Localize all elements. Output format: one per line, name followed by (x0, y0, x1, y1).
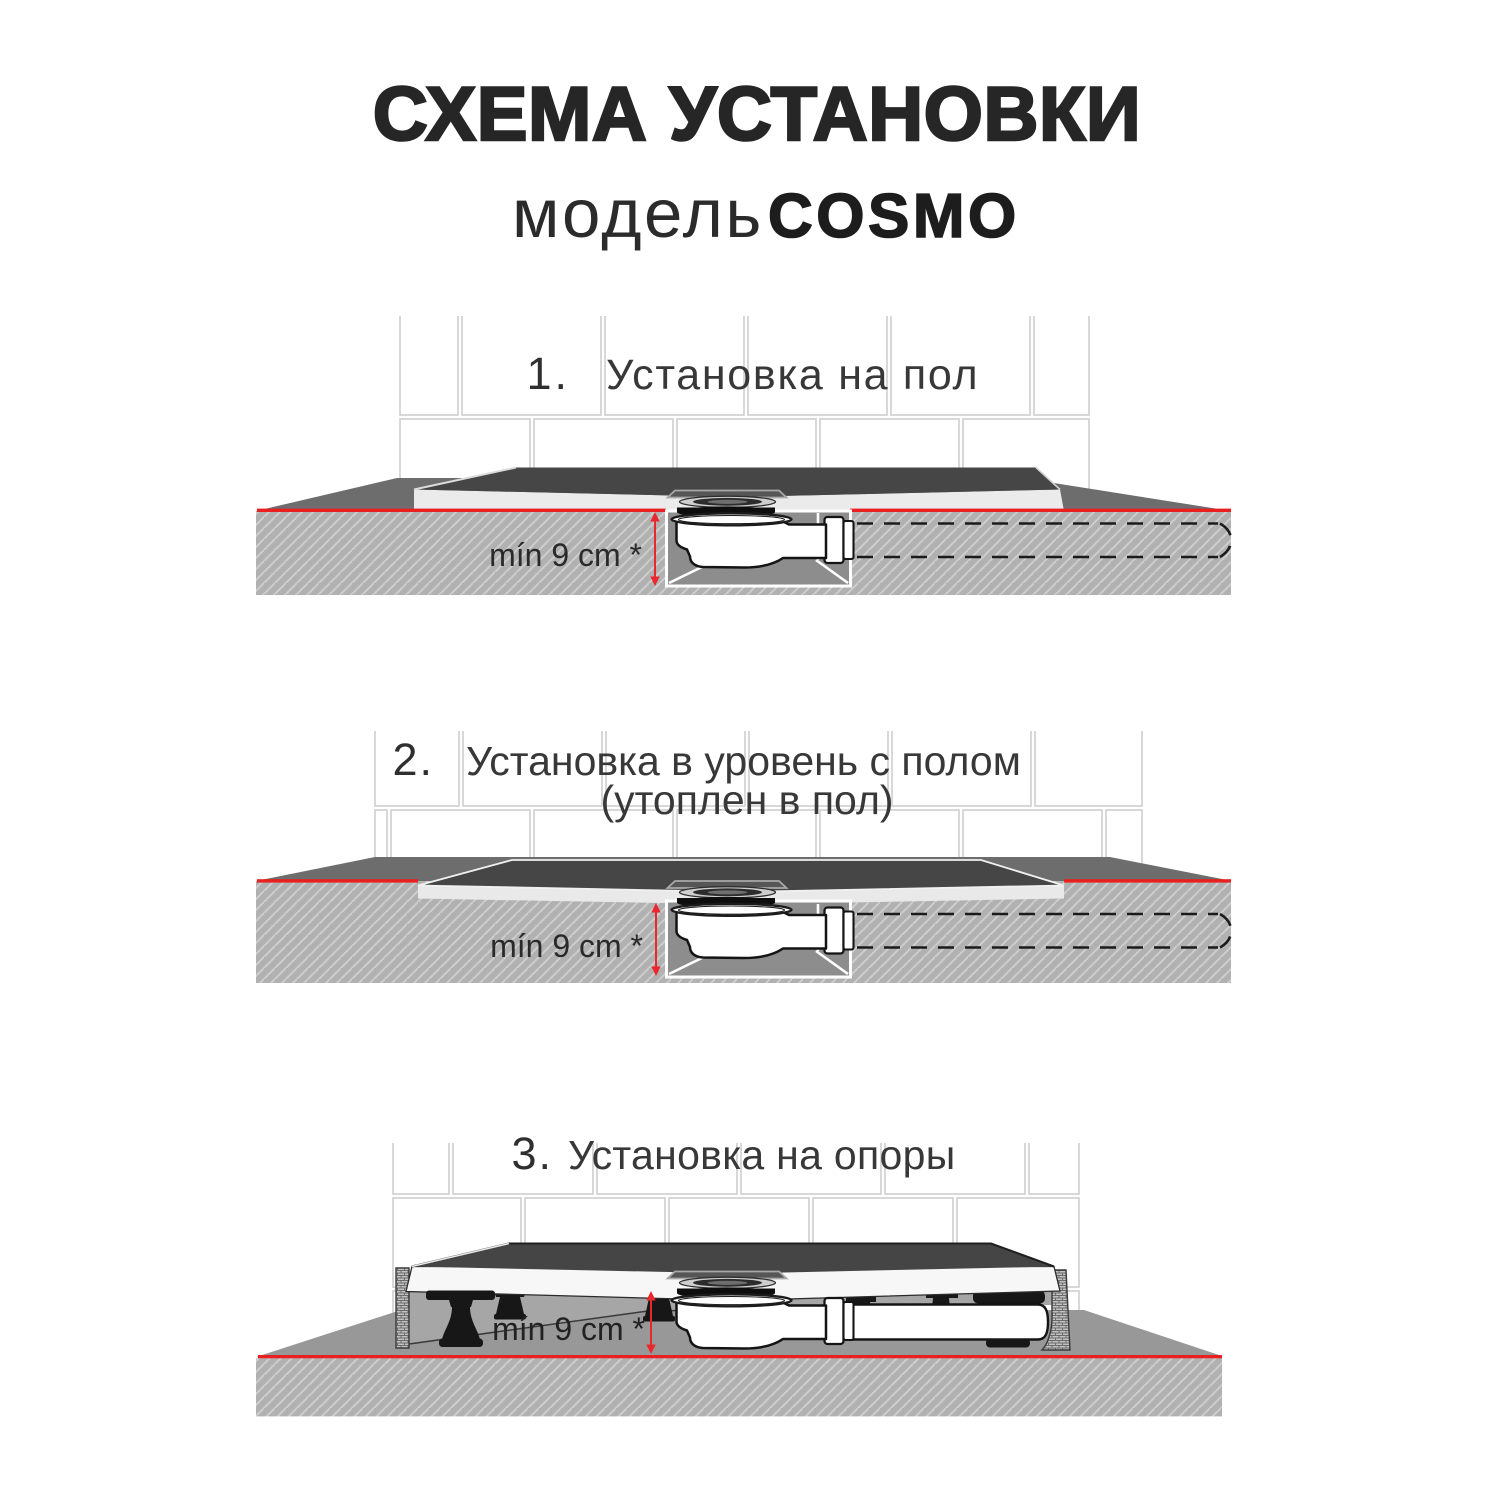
svg-text:модель: модель (512, 175, 764, 252)
svg-text:mín 9 cm *: mín 9 cm * (492, 1311, 645, 1347)
svg-text:СХЕМА УСТАНОВКИ: СХЕМА УСТАНОВКИ (373, 72, 1141, 157)
svg-text:1.: 1. (526, 348, 570, 399)
svg-text:3.: 3. (511, 1128, 553, 1179)
svg-text:mín 9 cm *: mín 9 cm * (489, 537, 642, 573)
svg-text:mín 9 cm *: mín 9 cm * (490, 928, 643, 964)
svg-text:COSMO: COSMO (768, 182, 1020, 251)
svg-text:Установка на пол: Установка на пол (606, 351, 979, 399)
svg-text:2.: 2. (392, 734, 434, 785)
svg-text:Установка на опоры: Установка на опоры (568, 1132, 956, 1178)
svg-text:(утоплен в пол): (утоплен в пол) (600, 777, 893, 823)
